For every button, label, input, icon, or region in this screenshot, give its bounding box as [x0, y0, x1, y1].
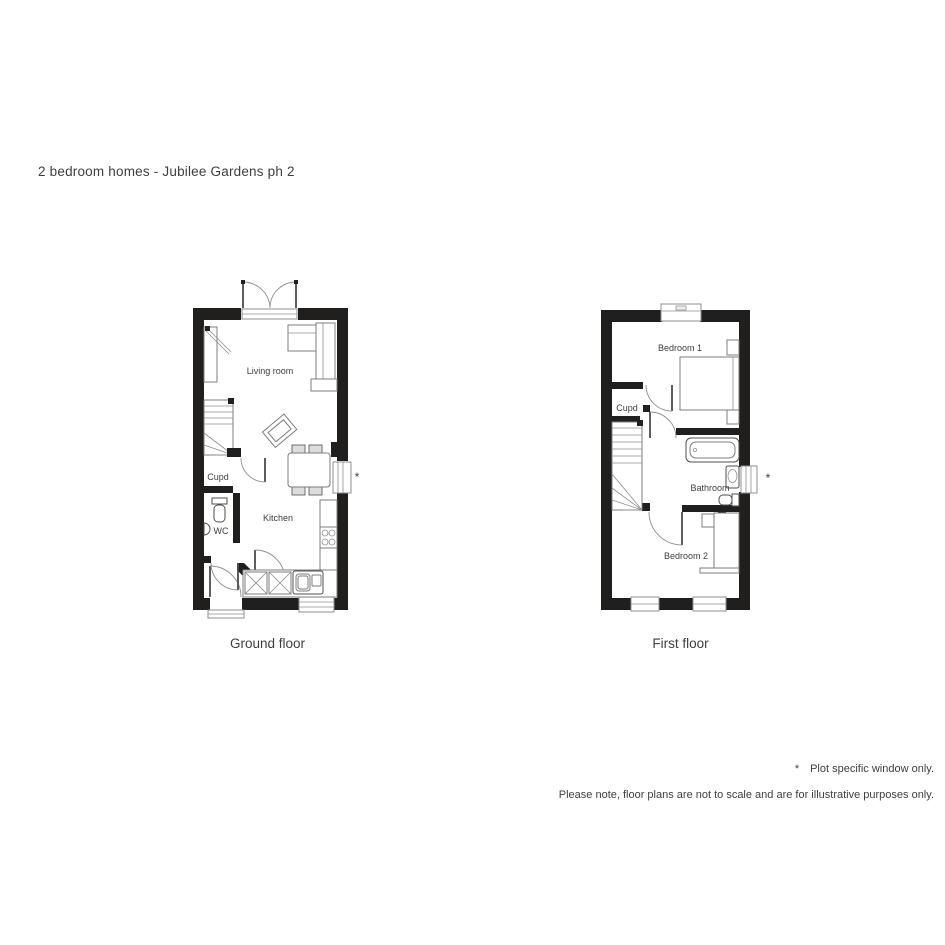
footnote-plot-window-text: Plot specific window only.: [810, 763, 934, 775]
coffee-table-icon: [262, 414, 296, 447]
bathroom-label: Bathroom: [690, 483, 729, 493]
plot-window-marker: *: [766, 471, 771, 485]
plot-window-marker: *: [355, 470, 360, 484]
bathroom-window-icon: [741, 466, 757, 493]
hob-icon: [320, 527, 337, 548]
ground-floor-plan: *: [185, 275, 365, 625]
cupboard-bottom-wall: [612, 416, 640, 422]
wc-label: WC: [214, 526, 229, 536]
tv-unit-icon: [204, 326, 231, 382]
first-floor-caption: First floor: [598, 636, 763, 651]
wall-notch: [331, 442, 348, 457]
bedroom2-label: Bedroom 2: [664, 551, 708, 561]
sink-icon: [293, 571, 323, 594]
bathroom-top-wall: [676, 428, 739, 435]
cupboard-label: Cupd: [616, 403, 638, 413]
toilet-icon: [212, 498, 227, 522]
front-door-opening: [210, 597, 242, 610]
bedroom2-window1-icon: [631, 597, 659, 611]
wc-wall-stub: [204, 556, 211, 563]
side-window-icon: [333, 462, 351, 493]
footnote-not-to-scale: Please note, floor plans are not to scal…: [559, 789, 934, 801]
footnote-marker: *: [795, 763, 799, 775]
page-title: 2 bedroom homes - Jubilee Gardens ph 2: [38, 164, 295, 179]
stairs-icon: [612, 420, 643, 510]
cupboard-wall: [204, 486, 233, 493]
stair-wall-stub: [642, 503, 650, 511]
kitchen-window-icon: [299, 596, 334, 612]
bedroom1-label: Bedroom 1: [658, 343, 702, 353]
bed2-icon: [700, 513, 739, 573]
bathroom-toilet-icon: [719, 494, 739, 506]
dining-table-icon: [288, 445, 330, 495]
cupboard-label: Cupd: [207, 472, 229, 482]
landing-wall-stub: [643, 405, 650, 412]
wc-wall: [233, 493, 240, 543]
floorplan-page: 2 bedroom homes - Jubilee Gardens ph 2: [0, 0, 945, 945]
french-doors-icon: [241, 280, 298, 319]
bathroom-door-icon: [650, 412, 676, 438]
bathroom-bottom-wall: [682, 505, 739, 512]
living-room-label: Living room: [247, 366, 294, 376]
bath-icon: [686, 438, 739, 462]
kitchen-label: Kitchen: [263, 513, 293, 523]
ground-floor-caption: Ground floor: [185, 636, 350, 651]
bedroom2-window2-icon: [693, 597, 726, 611]
bedroom1-window-icon: [661, 304, 701, 321]
wc-basin-icon: [204, 523, 210, 535]
hall-door-icon: [241, 458, 265, 482]
stairs-icon: [204, 398, 234, 455]
cupboard-top-wall: [612, 382, 643, 389]
sofa-icon: [288, 323, 337, 391]
wc-door-icon: [211, 563, 238, 590]
bedroom2-door-icon: [649, 512, 682, 545]
ground-floor-drawing: *: [185, 275, 365, 625]
first-floor-plan: * Bedroom 1: [598, 298, 783, 628]
footnote-plot-window: *Plot specific window only.: [795, 763, 934, 775]
first-floor-drawing: * Bedroom 1: [598, 298, 783, 628]
hall-wall-stub: [227, 448, 241, 457]
